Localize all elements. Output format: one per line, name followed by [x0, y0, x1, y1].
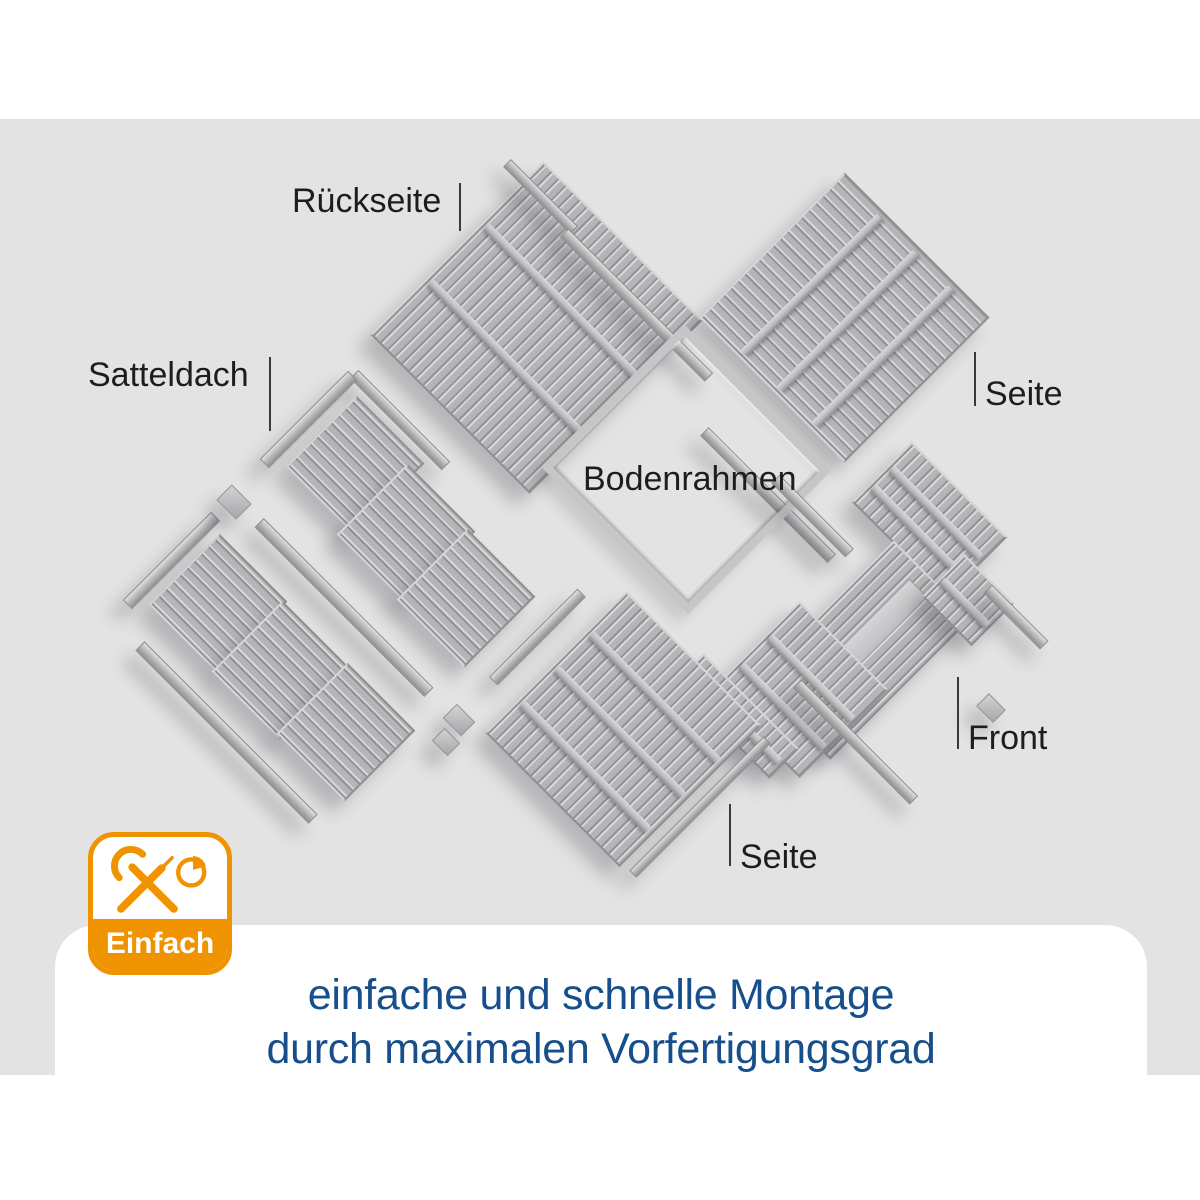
- label-bodenrahmen: Bodenrahmen: [583, 460, 797, 499]
- einfach-badge: Einfach: [88, 832, 232, 975]
- label-seite-right: Seite: [985, 375, 1063, 414]
- leader-line: [729, 804, 731, 866]
- label-seite-bottom: Seite: [740, 838, 818, 877]
- leader-line: [269, 357, 271, 431]
- label-satteldach: Satteldach: [88, 356, 249, 395]
- caption-line-1: einfache und schnelle Montage: [55, 968, 1147, 1022]
- panel-rail: [939, 578, 990, 629]
- label-rueckseite: Rückseite: [292, 182, 441, 221]
- leader-line: [459, 183, 461, 231]
- leader-line: [957, 677, 959, 749]
- caption-line-2: durch maximalen Vorfertigungsgrad: [55, 1022, 1147, 1076]
- tools-icon: [101, 843, 219, 921]
- badge-label: Einfach: [93, 919, 227, 970]
- pie-chart-clock-icon: [178, 856, 206, 885]
- product-diagram: Rückseite Satteldach Bodenrahmen Seite F…: [0, 0, 1200, 1200]
- caption-text: einfache und schnelle Montage durch maxi…: [55, 968, 1147, 1076]
- panel-rail: [776, 249, 919, 392]
- wrench-icon: [114, 849, 173, 908]
- panel-rail: [554, 666, 687, 799]
- label-front: Front: [968, 719, 1047, 758]
- leader-line: [974, 352, 976, 406]
